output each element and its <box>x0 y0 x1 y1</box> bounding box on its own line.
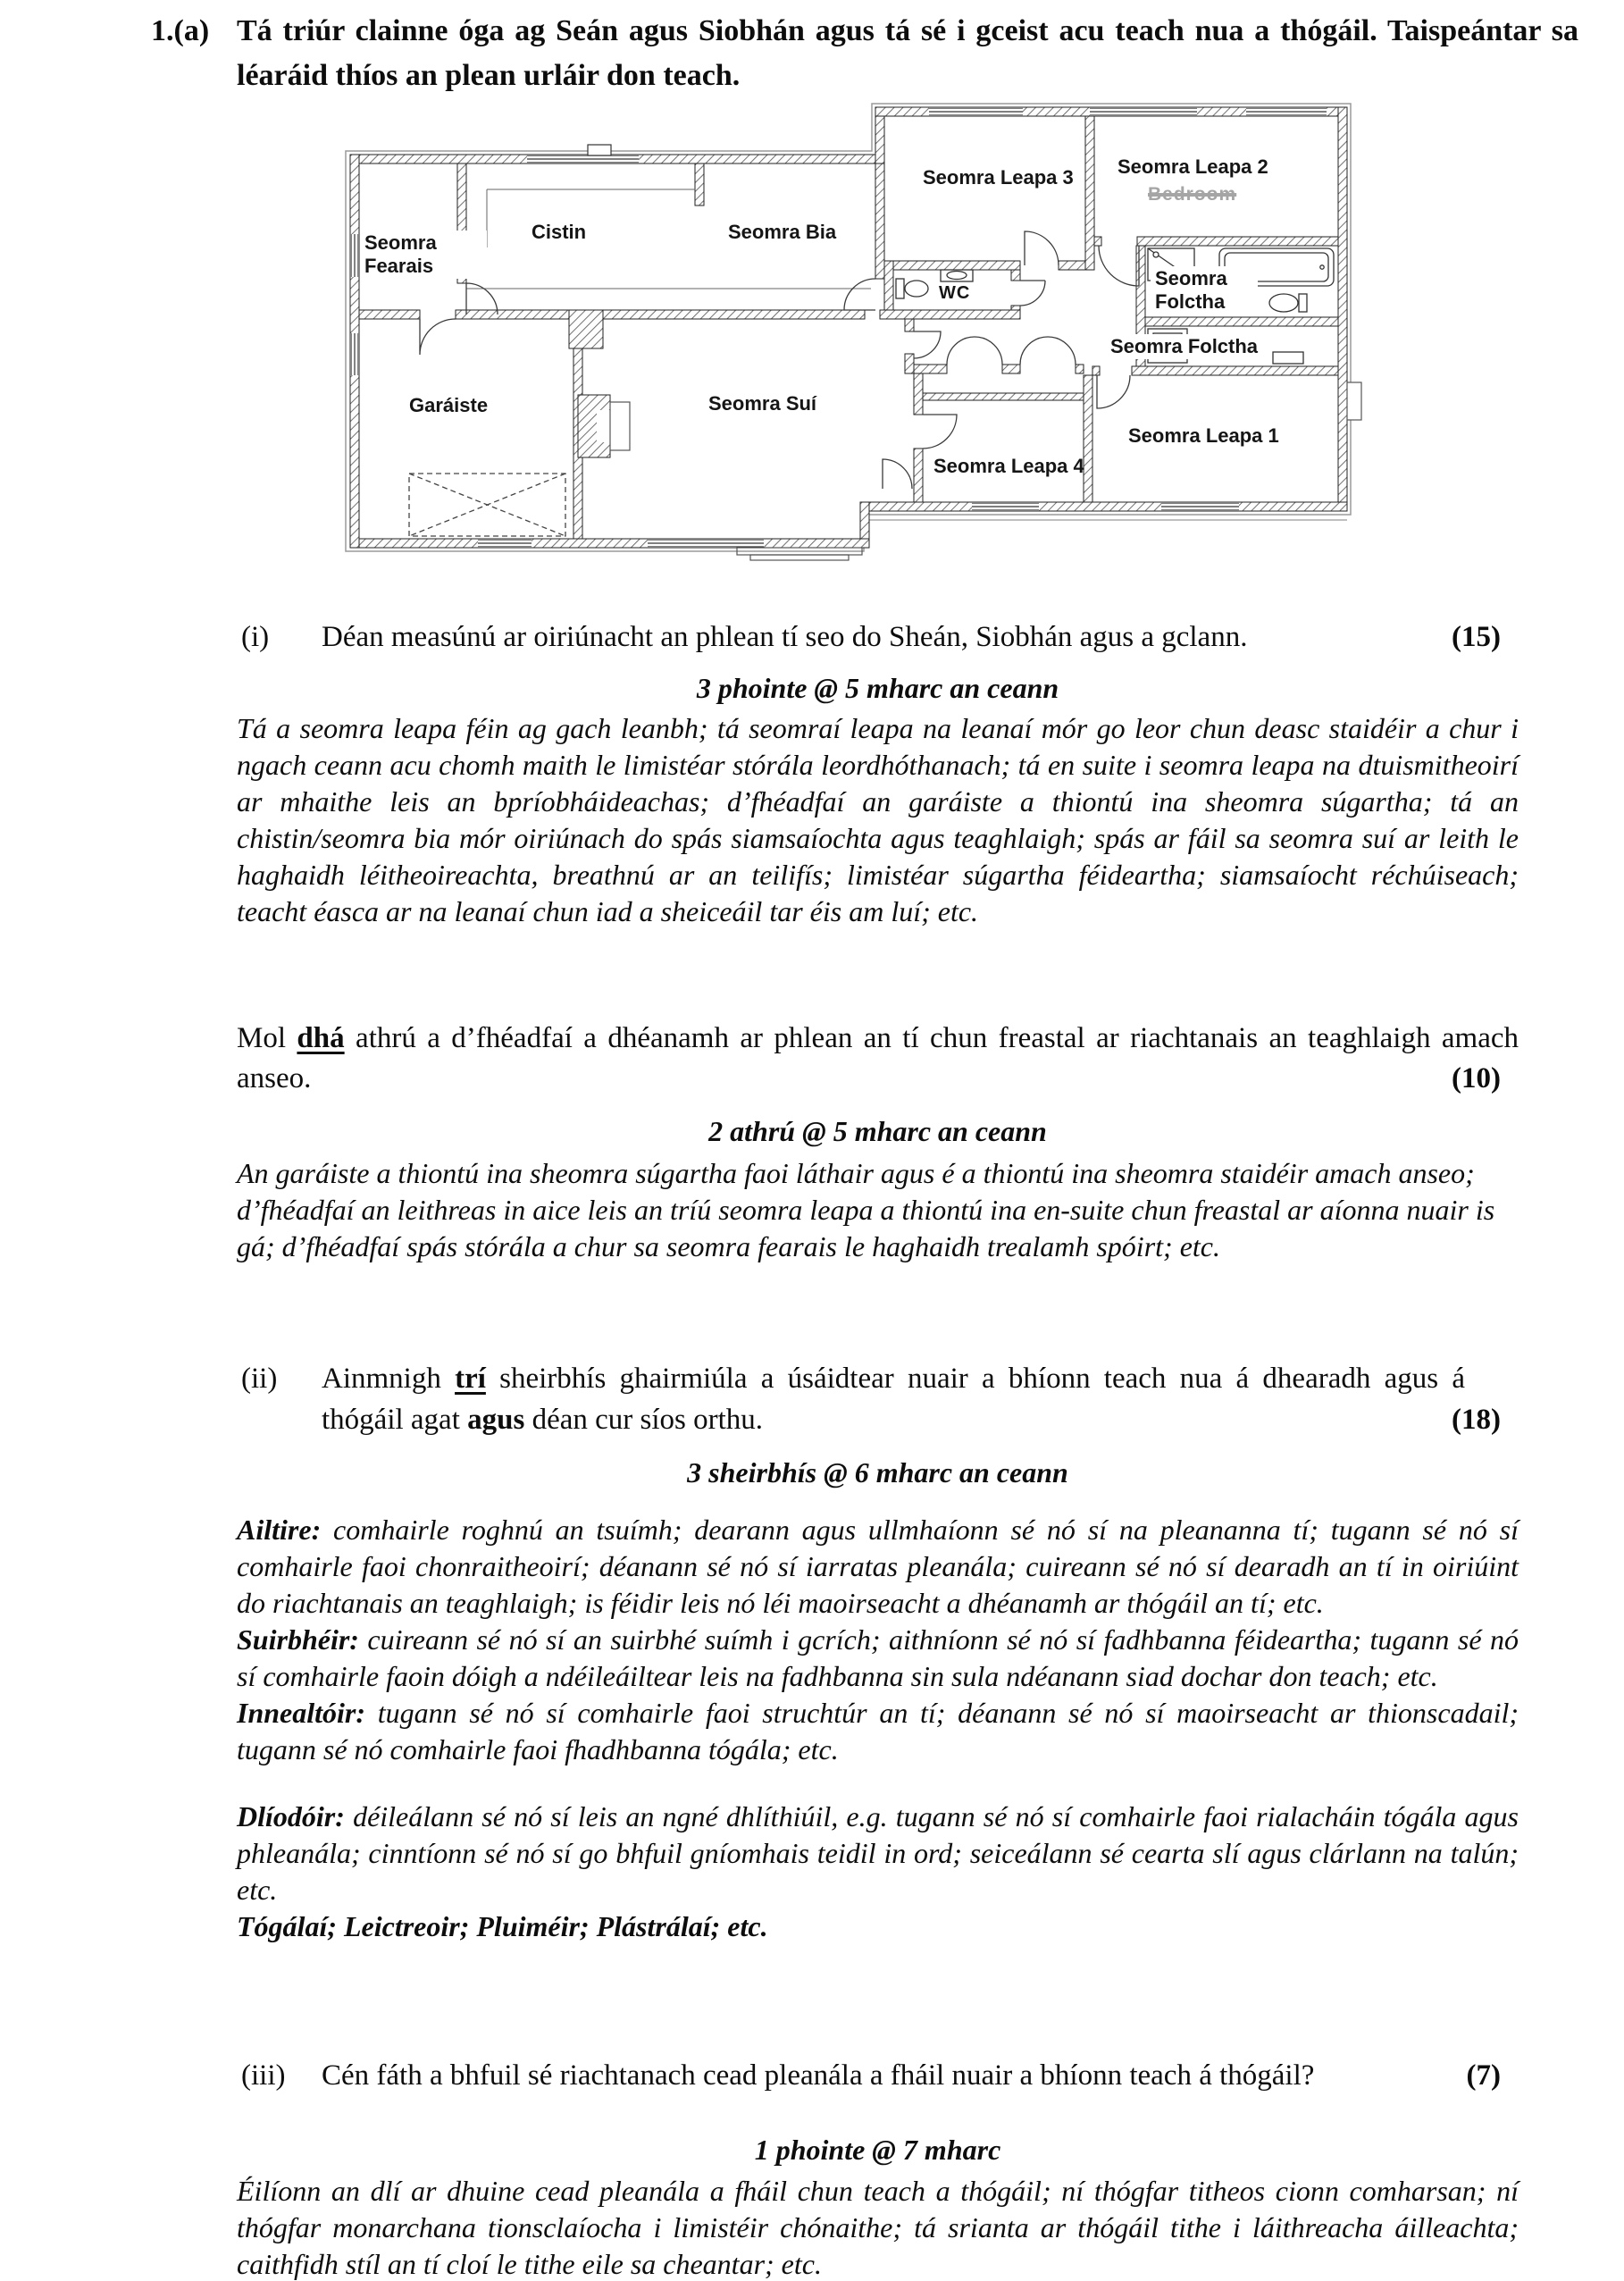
part-iii-label: (iii) <box>241 2055 285 2096</box>
service-ailtire: Ailtire: comhairle roghnú an tsuímh; dea… <box>237 1512 1519 1622</box>
service-innealtoir-desc: tugann sé nó sí comhairle faoi struchtúr… <box>237 1697 1519 1765</box>
service-ailtire-desc: comhairle roghnú an tsuímh; dearann agus… <box>237 1514 1519 1619</box>
room-label-bedroom2-faded: Bedroom <box>1148 183 1236 206</box>
fireplace-notch <box>597 410 610 442</box>
part-ii-scheme: 3 sheirbhís @ 6 mharc an ceann <box>237 1456 1519 1489</box>
part-i-question: Déan measúnú ar oiriúnacht an phlean tí … <box>322 616 1411 658</box>
part-i-marks: (15) <box>1452 616 1501 658</box>
ensuite-toilet-icon <box>1269 294 1307 312</box>
part-mol-question-row: Mol dhá athrú a d’fhéadfaí a dhéanamh ar… <box>237 1019 1519 1099</box>
service-suirbheir: Suirbhéir: cuireann sé nó sí an suirbhé … <box>237 1622 1519 1695</box>
service-innealtoir-name: Innealtóir: <box>237 1697 365 1729</box>
room-label-bedroom2: Seomra Leapa 2 <box>1118 155 1268 179</box>
room-label-garage: Garáiste <box>409 394 488 417</box>
room-label-bedroom3: Seomra Leapa 3 <box>923 166 1074 189</box>
question-number: 1.(a) <box>151 9 209 54</box>
part-mol-marks: (10) <box>1452 1059 1501 1099</box>
service-ailtire-name: Ailtire: <box>237 1514 321 1546</box>
part-mol-answer: An garáiste a thiontú ina sheomra súgart… <box>237 1155 1519 1265</box>
part-i-scheme: 3 phointe @ 5 mharc an ceann <box>237 672 1519 705</box>
part-ii-label: (ii) <box>241 1358 277 1399</box>
porch-steps <box>737 548 862 560</box>
part-iii-scheme: 1 phointe @ 7 mharc <box>237 2134 1519 2167</box>
question-intro: 1.(a) Tá triúr clainne óga ag Seán agus … <box>237 9 1578 98</box>
room-label-bathroom-main: Seomra Folctha <box>1106 334 1262 359</box>
garage-door-mark <box>409 474 565 536</box>
part-ii-emph2: agus <box>467 1404 524 1436</box>
fireplace-hearth <box>610 402 630 450</box>
part-iii-question-row: (iii) Cén fáth a bhfuil sé riachtanach c… <box>237 2055 1519 2096</box>
service-dliodoir-name: Dlíodóir: <box>237 1800 345 1832</box>
part-mol-emph: dhá <box>297 1022 344 1054</box>
room-label-bedroom4: Seomra Leapa 4 <box>933 455 1084 478</box>
room-label-kitchen: Cistin <box>532 221 586 244</box>
trades-line: Tógálaí; Leictreoir; Pluiméir; Plástrála… <box>237 1908 1519 1945</box>
room-label-utility: Seomra Fearais <box>360 231 487 279</box>
room-label-wc: WC <box>939 281 970 305</box>
part-iii-question: Cén fáth a bhfuil sé riachtanach cead pl… <box>322 2055 1411 2096</box>
part-ii-question-row: (ii) Ainmnigh trí sheirbhís ghairmiúla a… <box>237 1358 1519 1440</box>
service-innealtoir: Innealtóir: tugann sé nó sí comhairle fa… <box>237 1695 1519 1768</box>
exam-page: 1.(a) Tá triúr clainne óga ag Seán agus … <box>0 0 1624 2281</box>
wc-basin-icon <box>941 270 973 281</box>
door-arcs <box>420 231 1139 489</box>
room-label-sitting: Seomra Suí <box>708 392 816 415</box>
service-suirbheir-desc: cuireann sé nó sí an suirbhé suímh i gcr… <box>237 1623 1519 1692</box>
wc-toilet-icon <box>896 279 928 298</box>
bathroom-basin-icon <box>1273 352 1303 364</box>
part-ii-q3: déan cur síos orthu. <box>524 1404 763 1436</box>
part-i-question-row: (i) Déan measúnú ar oiriúnacht an phlean… <box>237 616 1519 658</box>
chimney-mark <box>588 145 611 155</box>
room-label-bedroom1: Seomra Leapa 1 <box>1128 424 1279 448</box>
part-mol-scheme: 2 athrú @ 5 mharc an ceann <box>237 1115 1519 1148</box>
room-label-bathroom-ensuite: Seomra Folctha <box>1151 266 1258 314</box>
service-suirbheir-name: Suirbhéir: <box>237 1623 359 1656</box>
floor-plan: Seomra Fearais Cistin Seomra Bia Seomra … <box>344 100 1371 578</box>
part-ii-question: Ainmnigh trí sheirbhís ghairmiúla a úsái… <box>322 1358 1465 1440</box>
question-intro-text: Tá triúr clainne óga ag Seán agus Siobhá… <box>237 14 1578 92</box>
room-label-dining: Seomra Bia <box>728 221 836 244</box>
part-mol-post: athrú a d’fhéadfaí a dhéanamh ar phlean … <box>237 1022 1519 1094</box>
part-ii-q1: Ainmnigh <box>322 1363 455 1395</box>
part-i-answer: Tá a seomra leapa féin ag gach leanbh; t… <box>237 710 1519 930</box>
part-iii-answer: Éilíonn an dlí ar dhuine cead pleanála a… <box>237 2173 1519 2281</box>
part-ii-marks: (18) <box>1452 1399 1501 1440</box>
service-dliodoir: Dlíodóir: déileálann sé nó sí leis an ng… <box>237 1799 1519 1908</box>
part-iii-marks: (7) <box>1467 2055 1501 2096</box>
part-ii-answers: Ailtire: comhairle roghnú an tsuímh; dea… <box>237 1512 1519 1945</box>
service-dliodoir-desc: déileálann sé nó sí leis an ngné dhlíthi… <box>237 1800 1519 1906</box>
side-porch <box>1347 382 1361 420</box>
part-mol-pre: Mol <box>237 1022 297 1054</box>
part-i-label: (i) <box>241 616 269 658</box>
part-ii-emph: trí <box>455 1363 486 1395</box>
